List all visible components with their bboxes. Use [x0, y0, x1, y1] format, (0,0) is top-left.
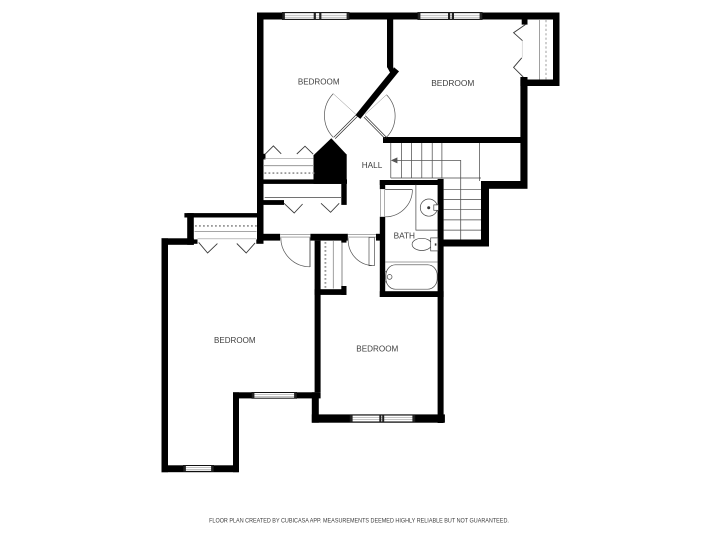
- svg-text:FLOOR PLAN CREATED BY CUBICASA: FLOOR PLAN CREATED BY CUBICASA APP. MEAS…: [209, 517, 509, 524]
- svg-text:BEDROOM: BEDROOM: [431, 78, 474, 88]
- svg-text:HALL: HALL: [362, 160, 383, 170]
- svg-text:BATH: BATH: [394, 230, 415, 240]
- svg-text:BEDROOM: BEDROOM: [356, 343, 398, 353]
- svg-text:BEDROOM: BEDROOM: [298, 77, 340, 87]
- svg-text:BEDROOM: BEDROOM: [214, 335, 256, 345]
